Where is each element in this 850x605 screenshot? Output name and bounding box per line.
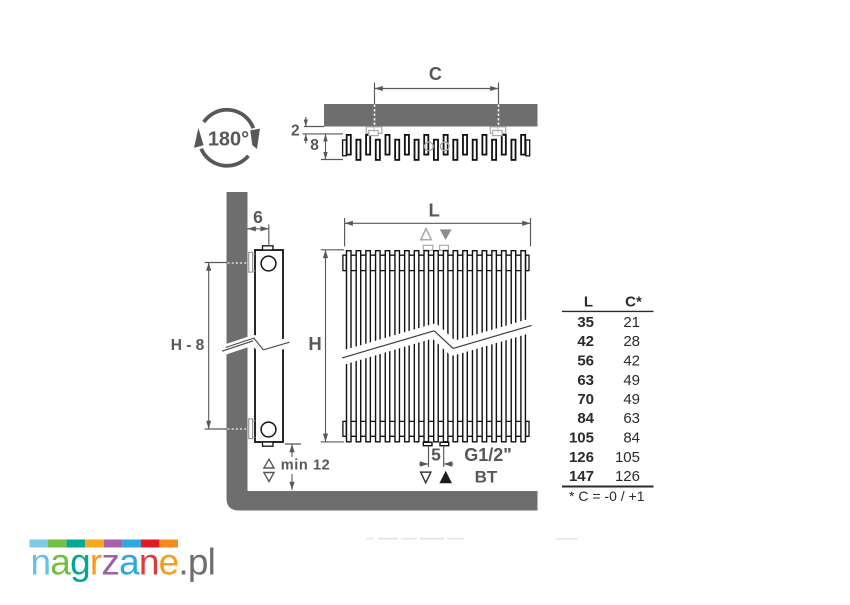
svg-text:70: 70 [577,391,594,408]
svg-text:35: 35 [577,314,594,331]
svg-text:5: 5 [431,445,441,465]
svg-text:6: 6 [253,207,263,227]
svg-text:nagrzane.pl: nagrzane.pl [31,542,216,583]
svg-text:2: 2 [291,123,300,140]
svg-text:BT: BT [475,468,498,487]
svg-text:min 12: min 12 [281,458,331,474]
svg-text:126: 126 [615,468,640,485]
svg-text:8: 8 [310,137,319,154]
svg-text:180°: 180° [208,129,249,151]
svg-text:* C = -0 / +1: * C = -0 / +1 [569,488,645,504]
svg-text:G1/2": G1/2" [464,445,512,465]
svg-text:49: 49 [623,391,640,408]
svg-text:L: L [584,294,593,311]
svg-text:H: H [308,333,321,354]
svg-text:C*: C* [625,294,642,311]
svg-text:H - 8: H - 8 [171,337,205,354]
svg-text:28: 28 [623,333,640,350]
svg-text:42: 42 [623,353,640,370]
svg-text:42: 42 [577,333,594,350]
svg-text:49: 49 [623,372,640,389]
svg-text:21: 21 [623,314,640,331]
svg-text:105: 105 [615,449,640,466]
svg-text:147: 147 [569,468,594,485]
svg-text:63: 63 [623,410,640,427]
svg-text:84: 84 [577,410,594,427]
svg-text:105: 105 [569,430,594,447]
svg-text:63: 63 [577,372,594,389]
svg-text:C: C [429,64,442,84]
svg-text:L: L [429,200,440,221]
svg-text:84: 84 [623,430,640,447]
svg-text:56: 56 [577,353,594,370]
svg-text:126: 126 [569,449,594,466]
